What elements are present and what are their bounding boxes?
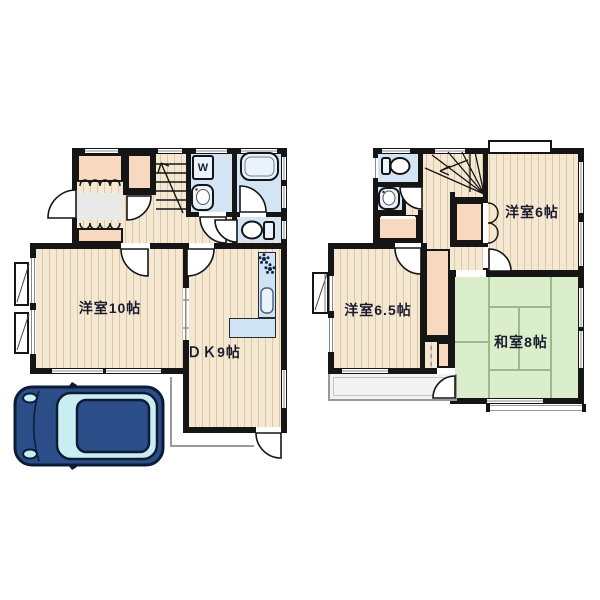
washing-machine-label: W — [198, 162, 208, 174]
closet — [127, 154, 152, 190]
sliding-door — [183, 288, 189, 340]
car-top-view — [15, 382, 163, 470]
door-opening — [199, 212, 226, 217]
window — [328, 318, 334, 352]
door-opening — [240, 212, 266, 217]
closet — [425, 249, 450, 337]
wall — [420, 243, 425, 374]
window — [487, 399, 543, 403]
wall — [123, 154, 127, 194]
wall — [152, 154, 156, 194]
room-label-western-10: 洋室10帖 — [79, 301, 142, 315]
room-label-western-6: 洋室6帖 — [505, 205, 559, 219]
closet-nook-floor — [425, 342, 437, 368]
door-arc — [256, 433, 281, 458]
room-label-japanese-8: 和室8帖 — [494, 335, 548, 349]
floorplan-canvas: W — [0, 0, 600, 600]
window-bay — [488, 140, 552, 154]
entrance-genkan-floor — [77, 193, 123, 220]
wall — [186, 148, 191, 217]
window — [435, 149, 465, 153]
kitchen-counter — [229, 318, 276, 338]
door-opening — [395, 243, 421, 249]
casement-window-bay — [312, 272, 329, 314]
window — [30, 258, 36, 303]
door-opening — [256, 427, 281, 433]
door-opening — [483, 247, 488, 268]
window — [579, 331, 583, 368]
casement-window-bay — [14, 262, 29, 306]
toilet-room-floor — [237, 217, 281, 242]
room-label-dk: ＤＫ9帖 — [187, 345, 241, 359]
tatami-line — [488, 369, 550, 371]
approach-line — [170, 445, 254, 447]
closet — [455, 202, 483, 242]
window — [579, 222, 583, 266]
wall — [402, 187, 406, 210]
window — [196, 149, 227, 153]
kitchen-counter — [258, 252, 276, 318]
sliding-entry — [456, 270, 486, 277]
washbasin-room-floor — [378, 187, 402, 210]
tatami-line — [488, 277, 490, 398]
door-opening — [121, 243, 150, 249]
closet-door-line — [381, 216, 415, 219]
washing-machine-icon: W — [192, 155, 214, 180]
window — [382, 149, 410, 153]
closet — [437, 342, 450, 368]
wall — [30, 243, 281, 249]
wall — [450, 242, 487, 247]
window — [158, 149, 182, 153]
window — [241, 149, 277, 153]
door-opening — [232, 220, 237, 242]
sill-cap — [582, 404, 586, 412]
wall — [378, 182, 418, 187]
wall — [450, 197, 487, 202]
casement-window-bay — [14, 312, 29, 354]
toilet-room-floor — [378, 154, 418, 182]
wall — [425, 337, 450, 342]
wall — [123, 190, 156, 195]
window — [579, 162, 583, 213]
door-opening — [72, 190, 77, 218]
balcony-rail — [333, 377, 452, 396]
window — [30, 310, 36, 354]
closet-opening — [483, 203, 488, 243]
window — [579, 288, 583, 327]
window — [282, 370, 286, 408]
door-opening — [189, 243, 214, 249]
window — [282, 186, 286, 208]
window — [282, 157, 286, 180]
tatami-line — [455, 341, 488, 343]
sill-cap — [486, 404, 490, 412]
wall — [418, 148, 423, 187]
window — [106, 369, 161, 373]
window — [85, 149, 118, 153]
window — [373, 158, 378, 178]
window-sill — [489, 405, 583, 411]
room-label-western-6-5: 洋室6.5帖 — [344, 303, 411, 317]
closet — [77, 228, 123, 243]
approach-line — [170, 377, 172, 447]
window — [342, 369, 388, 373]
tatami-line — [550, 277, 552, 398]
wall — [378, 210, 406, 215]
window — [282, 221, 286, 239]
bathroom-floor — [237, 154, 281, 215]
closet — [77, 154, 123, 182]
window — [52, 369, 103, 373]
